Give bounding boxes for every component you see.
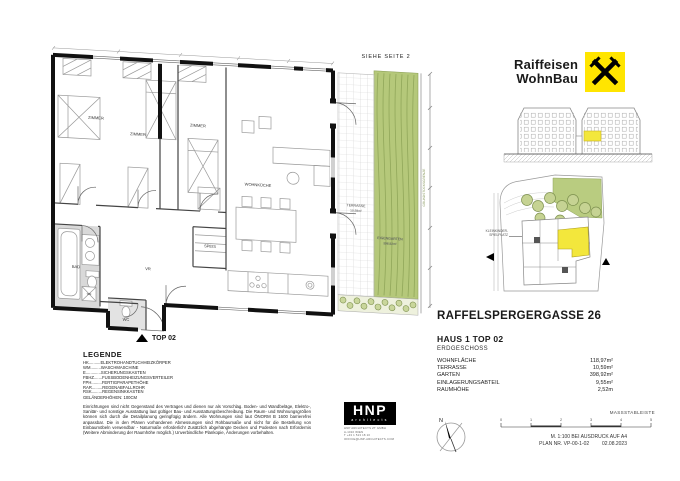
washbasin bbox=[82, 234, 99, 265]
armchair bbox=[242, 120, 254, 133]
armchair-2 bbox=[259, 116, 271, 129]
label-zimmer1: ZIMMER bbox=[88, 115, 104, 121]
label-wc: WC bbox=[123, 317, 130, 322]
architect-info-line: OFFICE@HNP-ARCHITECTS.COM bbox=[344, 438, 396, 442]
stat-label: RAUMHÖHE bbox=[437, 387, 469, 394]
scale-tick-label: 2 bbox=[560, 418, 562, 422]
garden-area-value: 398,92m² bbox=[383, 241, 396, 246]
entry-arrow-icon bbox=[136, 334, 148, 342]
project-street-title: RAFFELSPERGERGASSE 26 bbox=[437, 310, 601, 322]
building-section bbox=[502, 98, 654, 170]
brand-line2: WohnBau bbox=[514, 72, 578, 86]
disclaimer-text: Einrichtungen sind nicht Gegenstand des … bbox=[83, 404, 311, 435]
north-label: N bbox=[439, 418, 443, 424]
site-plan bbox=[480, 173, 680, 295]
stat-label: TERRASSE bbox=[437, 365, 467, 372]
entry-marker: TOP 02 bbox=[136, 334, 176, 342]
windows bbox=[93, 54, 336, 318]
stat-value: 2,52m bbox=[598, 387, 613, 394]
site-arrow-left-icon bbox=[486, 253, 494, 261]
entry-marker-label: TOP 02 bbox=[152, 335, 176, 342]
sofa bbox=[273, 147, 330, 186]
site-arrow-right-icon bbox=[602, 258, 610, 265]
scale-tick-label: 3 bbox=[590, 418, 592, 422]
garden-area: EIGENGARTEN 398,92m² bbox=[374, 71, 418, 299]
stat-label: EINLAGERUNGSABTEIL bbox=[437, 380, 500, 387]
label-speis: SPEIS bbox=[204, 243, 216, 249]
bed-zimmer3 bbox=[188, 138, 218, 194]
stat-row-raumhoehe: RAUMHÖHE 2,52m bbox=[437, 387, 613, 394]
playground-label: KLEINKINDER- SPIELPLATZ bbox=[474, 229, 508, 237]
scale-bar-title: MASSSTABLEISTE bbox=[500, 410, 655, 415]
architect-info: HNP ARCHITECTS ZT GMBH A-1010 WIEN T +43… bbox=[344, 427, 396, 441]
stat-row-garten: GARTEN 398,92m² bbox=[437, 372, 613, 379]
stat-row-terrasse: TERRASSE 10,59m² bbox=[437, 365, 613, 372]
boundary-label: GRUNDSTÜCKSGRENZE bbox=[422, 169, 426, 207]
raiffeisen-cross-icon bbox=[585, 52, 625, 92]
plan-date: 02.08.2023 bbox=[602, 441, 627, 447]
label-vr: VR bbox=[145, 266, 151, 271]
scale-tick-label: 0 bbox=[500, 418, 502, 422]
room-labels: ZIMMER ZIMMER ZIMMER WOHNKÜCHE BAD WC VR… bbox=[72, 114, 272, 330]
playground-leader-line bbox=[509, 236, 522, 237]
print-info: M. 1:100 BEI AUSDRUCK AUF A4 PLAN NR. VP… bbox=[467, 434, 627, 447]
brand-wordmark: Raiffeisen WohnBau bbox=[514, 58, 578, 86]
scale-tick-label: 4 bbox=[620, 418, 622, 422]
project-unit-title: HAUS 1 TOP 02 bbox=[437, 334, 503, 344]
plan-number: PLAN NR. VP-00-1-02 bbox=[539, 441, 589, 447]
stat-value: 10,59m² bbox=[593, 365, 613, 372]
legend-railing-note: GELÄNDERHÖHEN: 100CM bbox=[83, 396, 333, 401]
stat-label: WOHNFLÄCHE bbox=[437, 358, 476, 365]
scale-tick-label: 5 bbox=[650, 418, 652, 422]
section-highlighted-unit bbox=[584, 131, 601, 141]
playground-line2: SPIELPLATZ bbox=[474, 233, 508, 237]
architect-block: HNP architects HNP ARCHITECTS ZT GMBH A-… bbox=[344, 402, 396, 441]
dining-table bbox=[236, 196, 296, 253]
see-page-label: SIEHE SEITE 2 bbox=[346, 54, 426, 60]
hnp-logo: HNP architects bbox=[344, 402, 396, 425]
stat-label: GARTEN bbox=[437, 372, 460, 379]
brand-line1: Raiffeisen bbox=[514, 58, 578, 72]
project-floor-label: ERDGESCHOSS bbox=[437, 346, 488, 352]
plan-sheet: { "header": { "brand_line1": "Raiffeisen… bbox=[0, 0, 680, 481]
label-wohnkueche: WOHNKÜCHE bbox=[245, 182, 272, 189]
floor-plan-drawing: EIGENGARTEN 398,92m² TERRASSE 10,59m² bbox=[38, 46, 440, 346]
kitchen-counter bbox=[228, 271, 328, 297]
stat-row-wohnflaeche: WOHNFLÄCHE 118,97m² bbox=[437, 358, 613, 365]
north-arrow: N bbox=[432, 414, 470, 454]
stat-value: 9,55m² bbox=[596, 380, 613, 387]
stat-value: 398,92m² bbox=[590, 372, 613, 379]
terrace-area-value: 10,59m² bbox=[350, 208, 362, 213]
label-bad: BAD bbox=[72, 264, 80, 269]
scale-tick-label: 1 bbox=[530, 418, 532, 422]
stat-row-einlagerungsabteil: EINLAGERUNGSABTEIL 9,55m² bbox=[437, 380, 613, 387]
scale-bar: 0 1 2 3 4 5 bbox=[497, 416, 657, 432]
brand-logo: Raiffeisen WohnBau bbox=[514, 52, 625, 92]
hnp-logo-top: HNP bbox=[344, 403, 396, 418]
plan-number-line: PLAN NR. VP-00-1-02 02.08.2023 bbox=[467, 441, 627, 448]
terrace-area: TERRASSE 10,59m² bbox=[338, 73, 374, 297]
legend-title: LEGENDE bbox=[83, 350, 333, 359]
wardrobes bbox=[60, 163, 220, 212]
coffee-table bbox=[287, 172, 299, 185]
label-wm: WM bbox=[87, 292, 92, 296]
project-stats-table: WOHNFLÄCHE 118,97m² TERRASSE 10,59m² GAR… bbox=[437, 358, 613, 394]
bearing-wall-stub bbox=[158, 61, 162, 139]
stat-value: 118,97m² bbox=[590, 358, 613, 365]
legend: LEGENDE HK..........ELEKTROHANDTUCHHEIZK… bbox=[83, 350, 333, 401]
label-zimmer3: ZIMMER bbox=[190, 123, 206, 129]
hnp-logo-bottom: architects bbox=[344, 418, 396, 423]
label-zimmer2: ZIMMER bbox=[130, 131, 146, 137]
